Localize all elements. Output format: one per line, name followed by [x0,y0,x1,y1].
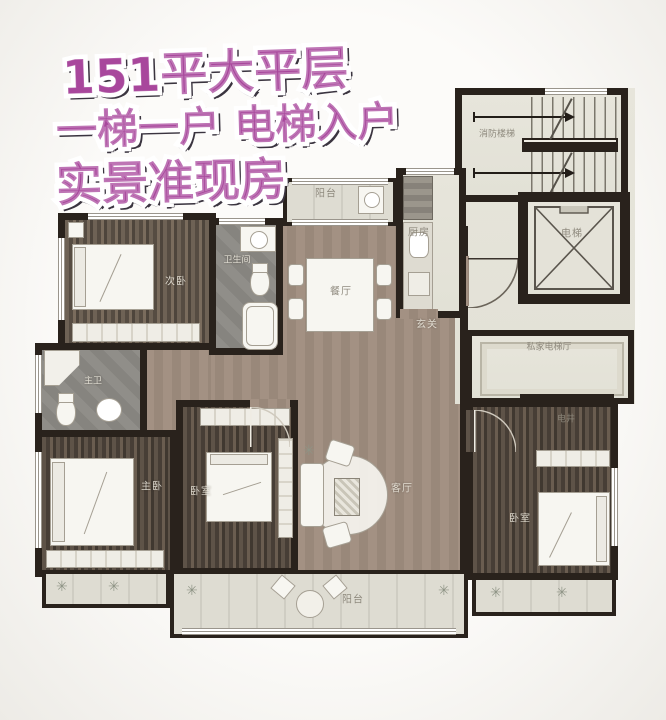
room-label-entry-hall: 玄关 [416,316,438,331]
room-label-bedroom-middle: 卧室 [190,483,212,498]
balcony-table [296,590,324,618]
vanity-sink [250,231,268,249]
room-label-bedroom-right: 卧室 [509,510,531,525]
bedroom-secondary-window-left [58,238,65,320]
kitchen-tall-cabinet [403,176,433,220]
room-label-utility-shaft: 电井 [557,412,575,425]
stairs-window [545,88,607,95]
bed-pillow [74,247,86,307]
plant-icon: ✳ [108,580,120,594]
dining-chair [288,264,304,286]
bedroom-secondary-window-top [88,213,183,220]
stairs-up-arrow-icon [474,116,566,118]
elevator-car-icon [534,206,614,290]
room-label-bedroom-secondary: 次卧 [165,273,187,288]
room-label-balcony-top: 阳台 [315,185,337,200]
master-bath-window [35,355,42,413]
floorplan-flyer: ✳ ✳ ✳ ✳ ✳ ✳ ✳ 次卧 卫生间 阳台 餐厅 厨房 玄关 消防楼梯 电梯 [0,0,666,720]
bedroom-right-door-arc-icon [474,410,516,452]
toilet [56,398,76,426]
bed-pillow [596,496,607,562]
room-label-dining: 餐厅 [330,283,352,298]
stairs-down-arrow-icon [474,172,566,174]
coffee-table [334,478,360,516]
dining-chair [288,298,304,320]
room-label-master-bedroom: 主卧 [141,478,163,493]
wardrobe [46,550,164,568]
sofa [300,463,324,527]
bedroom-right-window [611,468,618,546]
stove [408,272,430,296]
stair-landing-divider [522,138,618,152]
bathroom-guest-window [219,218,265,225]
dining-chair [376,298,392,320]
plant-icon: ✳ [438,584,450,598]
master-bedroom-window [35,452,42,548]
bed-pillow [210,454,268,465]
room-label-private-elevator-hall: 私家电梯厅 [526,340,571,353]
dining-chair [376,264,392,286]
plant-icon: ✳ [490,586,502,600]
kitchen-window [406,168,454,175]
bed-pillow [52,462,65,542]
balcony-dining-slider [292,219,388,226]
plant-icon: ✳ [303,444,315,458]
balcony-bottom-window [182,628,456,635]
room-label-balcony-bottom: 阳台 [342,591,364,606]
plant-icon: ✳ [56,580,68,594]
tv-cabinet [278,438,293,538]
room-label-living: 客厅 [391,480,413,495]
wardrobe [72,323,200,342]
bedroom-middle-door-arc-icon [250,407,290,447]
room-label-fire-stairs: 消防楼梯 [479,127,515,140]
room-label-kitchen: 厨房 [408,224,430,239]
room-label-master-bath: 主卫 [84,374,102,387]
wardrobe [536,450,610,467]
plant-icon: ✳ [556,586,568,600]
washing-machine-drum [364,192,380,208]
nightstand [68,222,84,238]
balcony-top-window [292,178,388,185]
master-bath-sink [96,398,122,422]
plant-icon: ✳ [186,584,198,598]
entry-door-arc-icon [468,258,518,308]
room-label-bathroom-guest: 卫生间 [223,253,250,266]
bathtub [242,302,278,350]
toilet [250,268,270,296]
room-label-elevator: 电梯 [561,225,583,240]
overlay-headline-3: 实景准现房 [55,143,287,215]
